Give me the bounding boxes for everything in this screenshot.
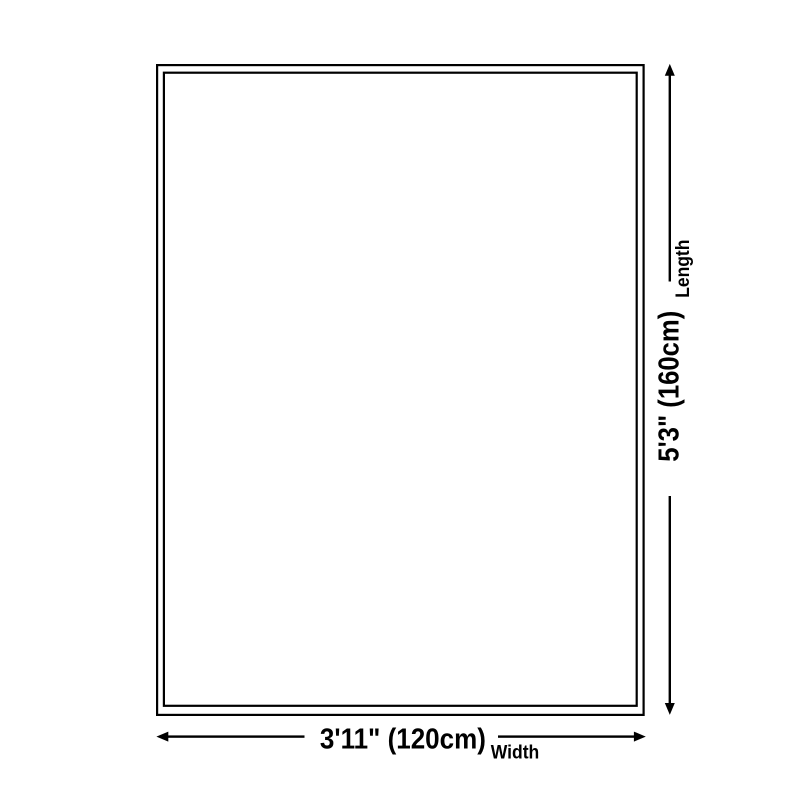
svg-text:Width: Width [491, 741, 540, 763]
svg-text:5'3" (160cm): 5'3" (160cm) [652, 311, 685, 462]
svg-text:Length: Length [671, 240, 693, 298]
svg-text:3'11" (120cm): 3'11" (120cm) [320, 722, 486, 755]
